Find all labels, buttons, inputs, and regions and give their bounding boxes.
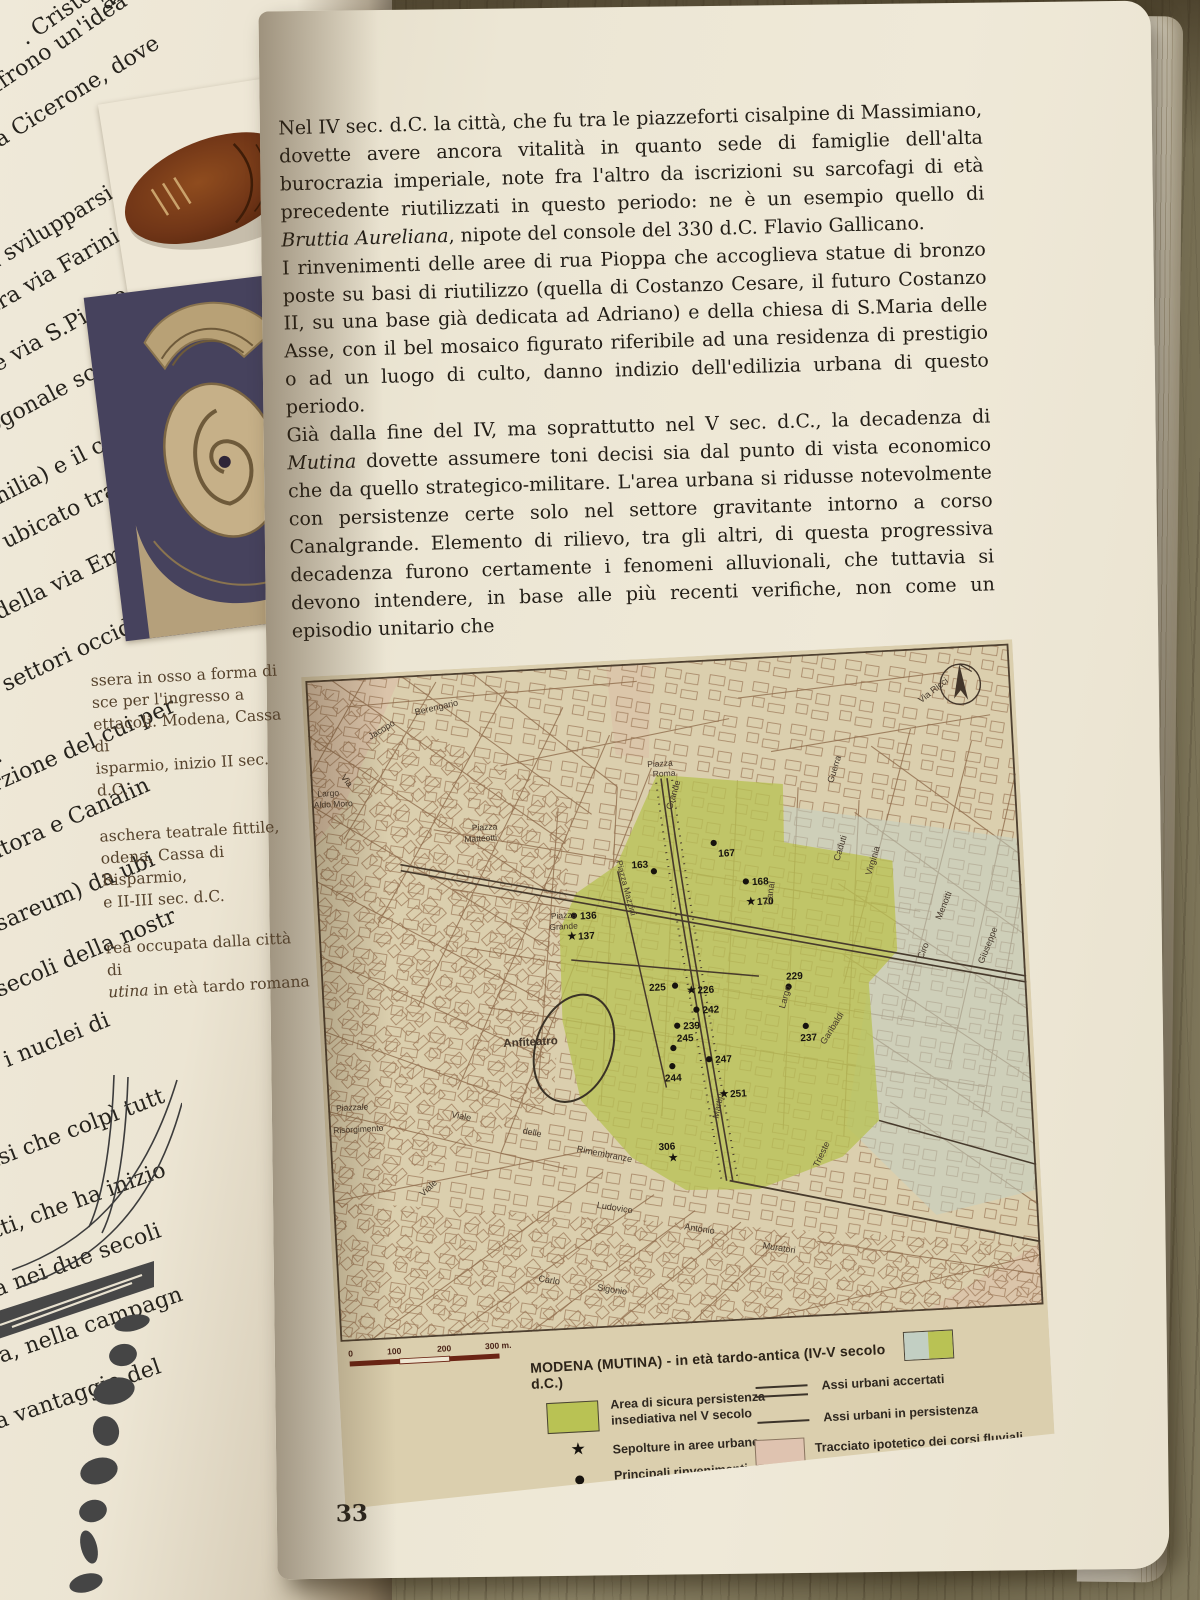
legend-label-single-line: Assi urbani in persistenza [823, 1399, 1034, 1426]
map-place-label: Piazza [551, 910, 577, 921]
legend-label-pink: Tracciato ipotetico dei corsi fluviali [814, 1429, 1045, 1457]
legend-green-swatch [546, 1400, 600, 1434]
caption-mask: aschera teatrale fittile, odena, Cassa d… [99, 814, 309, 913]
map-point-number: 136 [580, 911, 598, 923]
paragraph-1: Nel IV sec. d.C. la città, che fu tra le… [278, 97, 986, 256]
right-page: Nel IV sec. d.C. la città, che fu tra le… [258, 1, 1169, 1580]
map-point-number: 225 [649, 982, 667, 994]
caption-tessera: ssera in osso a forma di sce per l'ingre… [90, 659, 302, 802]
map-point-number: 247 [715, 1054, 733, 1066]
map-point-number: 245 [677, 1033, 695, 1045]
scale-label-300: 300 m. [485, 1340, 512, 1351]
map-point-number: 242 [702, 1004, 720, 1016]
map-point-star: ★ [686, 983, 698, 998]
map-point-number: 237 [800, 1032, 818, 1044]
map-point-number: 226 [697, 985, 715, 997]
map-point-number: 244 [665, 1073, 683, 1085]
caption-italic: utina [108, 981, 149, 1001]
legend-dot-symbol [575, 1475, 584, 1484]
map-point-number: 167 [718, 848, 736, 860]
scale-label-200: 200 [437, 1343, 452, 1354]
paragraph-3: Già dalla fine del IV, ma soprattutto ne… [286, 404, 996, 646]
caption-map: rea occupata dalla città di utina in età… [105, 926, 313, 1003]
map-point-number: 137 [578, 931, 596, 943]
legend-star-symbol: ★ [570, 1439, 586, 1460]
legend-pink-swatch [754, 1437, 805, 1466]
map-point-number: 251 [730, 1088, 748, 1100]
map-place-label: Matteotti [464, 832, 497, 844]
body-text: Nel IV sec. d.C. la città, che fu tra le… [278, 97, 996, 646]
legend-label-dot: Principali rinvenimenti [614, 1457, 835, 1484]
paragraph-2: I rinvenimenti delle aree di rua Pioppa … [282, 236, 990, 423]
map-point-number: 229 [786, 971, 804, 983]
map-point-number: 306 [658, 1141, 676, 1153]
map-title-swatch [903, 1329, 954, 1361]
city-map: 136★137163167168★170225★2262422392452442… [304, 643, 1044, 1342]
candelabrum-drawing [0, 1075, 182, 1600]
swatch-green [928, 1330, 953, 1358]
right-page-content: Nel IV sec. d.C. la città, che fu tra le… [258, 1, 1169, 1580]
map-place-label: Grande [549, 921, 578, 933]
map-point-number: 163 [631, 860, 649, 872]
map-point-number: 239 [683, 1021, 701, 1033]
map-place-label: Roma [652, 768, 675, 779]
swatch-water [904, 1332, 929, 1360]
map-point-star: ★ [745, 894, 757, 909]
caption-column: ssera in osso a forma di sce per l'ingre… [90, 659, 315, 1028]
map-figure: 136★137163167168★170225★2262422392452442… [301, 639, 1056, 1509]
map-place-label: Piazza [472, 821, 498, 832]
